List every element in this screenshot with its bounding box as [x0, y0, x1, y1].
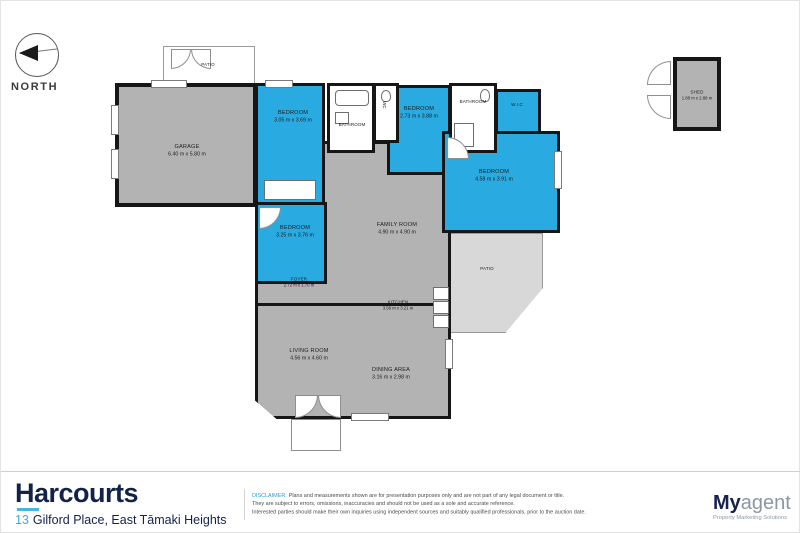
address-text: Gilford Place, East Tāmaki Heights — [33, 513, 227, 527]
room-wc-left — [373, 83, 399, 143]
myagent-tagline: Property Marketing Solutions — [713, 514, 787, 520]
harcourts-logo: Harcourts — [15, 478, 138, 509]
window — [151, 80, 187, 88]
window — [554, 151, 562, 189]
room-label-garage: GARAGE6.40 m x 5.80 m — [168, 143, 206, 157]
window — [265, 80, 293, 88]
room-bathroom-left — [327, 83, 375, 153]
bathtub — [335, 90, 369, 106]
disclaimer: DISCLAIMER:Plans and measurements shown … — [252, 491, 610, 515]
disclaimer-line-1: DISCLAIMER:Plans and measurements shown … — [252, 491, 610, 499]
property-address: 13Gilford Place, East Tāmaki Heights — [15, 513, 227, 527]
room-label-bedroom-1: BEDROOM3.05 m x 3.69 m — [274, 109, 312, 123]
room-label-wic: W.I.C — [511, 102, 523, 108]
address-number: 13 — [15, 513, 29, 527]
room-label-dining-area: DINING AREA3.16 m x 2.98 m — [372, 366, 410, 380]
room-label-foyer: FOYER2.72 m x 1.70 m — [284, 276, 314, 287]
room-label-living-room: LIVING ROOM4.56 m x 4.60 m — [289, 347, 328, 361]
footer-divider — [1, 471, 800, 472]
room-label-bathroom-left: BATHROOM — [339, 122, 366, 128]
door-arc — [647, 95, 671, 119]
window — [351, 413, 389, 421]
wardrobe — [264, 180, 316, 200]
kitchen-appliance — [433, 301, 449, 314]
kitchen-appliance — [433, 287, 449, 300]
myagent-wordmark: Myagent — [713, 492, 800, 515]
room-bedroom-1 — [255, 83, 325, 208]
window — [111, 105, 119, 135]
living-dining-block — [255, 303, 451, 419]
room-label-kitchen: KITCHEN3.58 m x 3.21 m — [383, 299, 413, 310]
room-label-bedroom-master: BEDROOM4.58 m x 3.91 m — [475, 168, 513, 182]
disclaimer-line-2: They are subject to errors, omissions, i… — [252, 499, 610, 507]
window — [445, 339, 453, 369]
disclaimer-line-3: Interested parties should make their own… — [252, 507, 610, 515]
room-label-family-room: FAMILY ROOM4.90 m x 4.90 m — [377, 221, 417, 235]
room-patio-right — [449, 233, 543, 333]
deck-step — [291, 419, 341, 451]
myagent-logo: Myagent Property Marketing Solutions — [713, 492, 800, 523]
disclaimer-label: DISCLAIMER: — [252, 492, 287, 498]
door-arc — [647, 61, 671, 85]
room-label-patio-top: PATIO — [201, 62, 215, 68]
north-arrow-icon — [19, 45, 38, 61]
north-compass-icon — [15, 33, 59, 77]
window — [111, 149, 119, 179]
floor-plan: PATIO GARAGE6.40 m x 5.80 m BEDROOM3.05 … — [1, 1, 800, 471]
harcourts-logo-underline — [17, 508, 39, 511]
room-label-bedroom-4: BEDROOM3.25 m x 3.76 m — [276, 224, 314, 238]
footer-vertical-divider — [244, 489, 245, 520]
room-label-bathroom-right: BATHROOM — [460, 99, 487, 105]
room-label-patio-right: PATIO — [480, 266, 494, 272]
room-label-wc: WC — [381, 101, 387, 109]
kitchen-appliance — [433, 315, 449, 328]
room-label-bedroom-2: BEDROOM2.73 m x 3.88 m — [400, 105, 438, 119]
room-label-shed: SHED1.88 m x 2.88 m — [682, 89, 712, 100]
